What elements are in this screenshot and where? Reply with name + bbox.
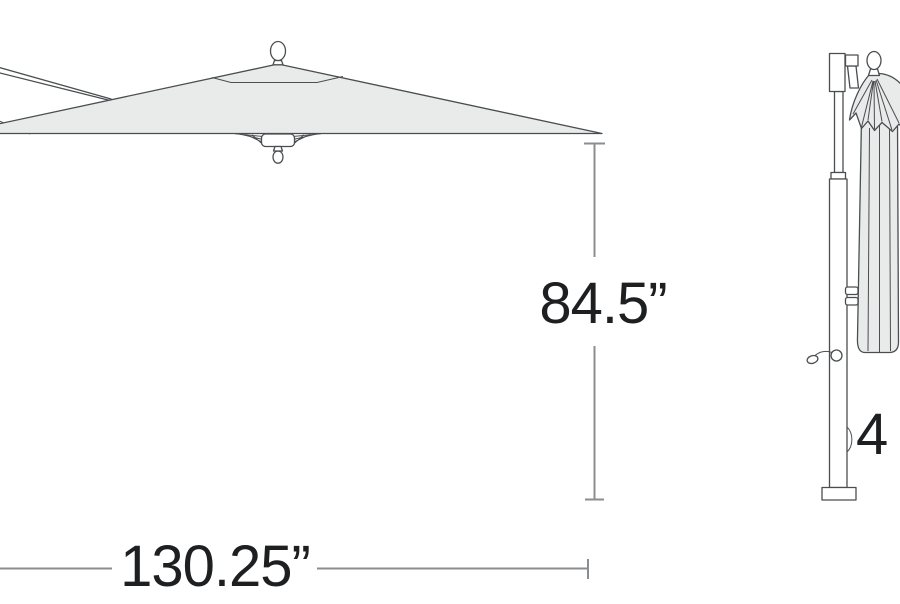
folded-skirt <box>857 118 898 353</box>
rib-tab <box>846 298 859 306</box>
bracket-arm <box>848 66 859 88</box>
umbrella-line-art <box>0 0 900 604</box>
rib-tab <box>846 287 859 295</box>
height-dimension-label: 84.5” <box>539 275 666 333</box>
under-hub <box>235 134 321 163</box>
open-canopy <box>0 64 602 134</box>
pole-bump <box>847 427 852 452</box>
hub <box>262 134 295 147</box>
bracket <box>846 55 859 66</box>
open-umbrella-illustration <box>0 42 602 164</box>
hub-finial <box>274 147 283 152</box>
closed-finial <box>867 52 881 76</box>
pole <box>822 54 856 501</box>
main-pole <box>830 179 848 488</box>
diagram-stage: 84.5” 130.25” 4 <box>0 0 900 604</box>
top-finial <box>271 42 286 65</box>
motor-housing <box>830 54 846 92</box>
cantilever-arm <box>0 66 114 102</box>
pole-collar <box>831 173 846 180</box>
width-dimension-label: 130.25” <box>120 538 310 596</box>
base-plate <box>822 488 856 501</box>
partial-dimension-label: 4 <box>856 406 887 464</box>
